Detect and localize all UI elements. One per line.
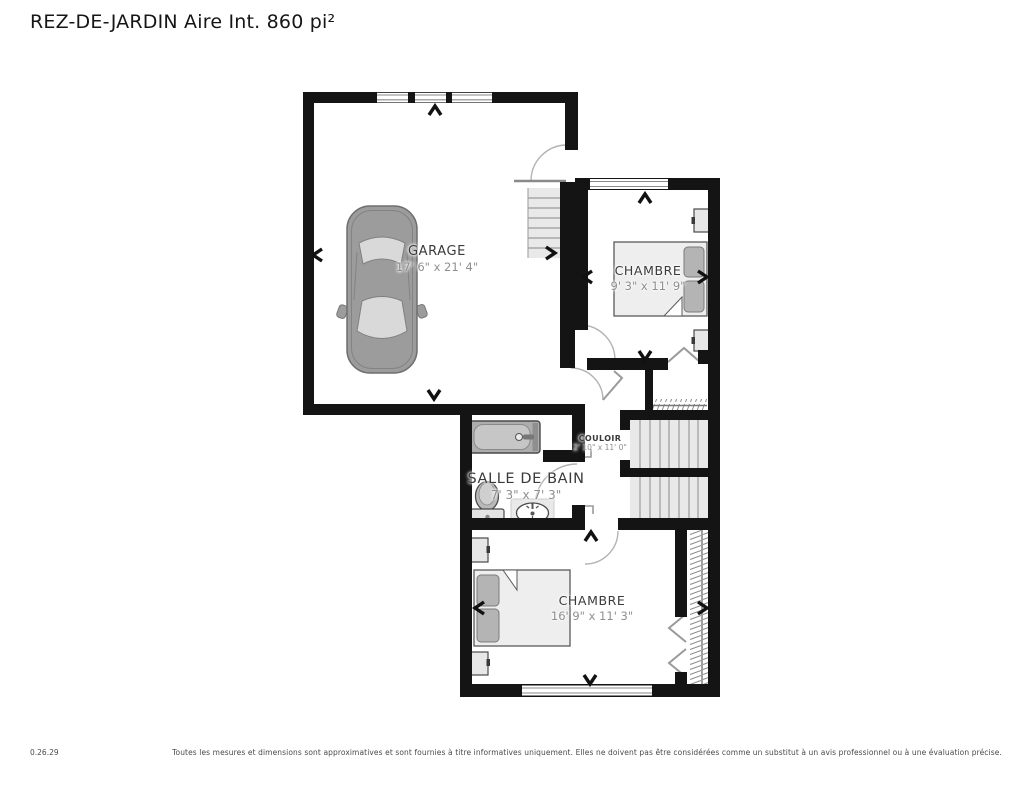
room-dimension-couloir: 2' 10" x 11' 0"	[573, 443, 627, 452]
arrow-down-icon	[584, 675, 596, 684]
arrow-up-icon	[639, 194, 651, 203]
room-name-couloir: COULOIR	[573, 434, 627, 443]
room-dimension-chambre1: 9' 3" x 11' 9"	[611, 279, 686, 293]
garage-couloir-door-arc	[571, 368, 603, 400]
arrow-left-icon	[313, 249, 322, 261]
room-name-garage: GARAGE	[396, 244, 478, 259]
garage-door-opening	[377, 93, 492, 103]
closet2-bifold-door-upper	[669, 614, 686, 642]
room-label-group-couloir: COULOIR 2' 10" x 11' 0"	[573, 434, 627, 452]
floorplan-drawing	[0, 0, 1024, 791]
staircase-garage-landing	[528, 188, 562, 258]
footer-disclaimer: Toutes les mesures et dimensions sont ap…	[170, 748, 1004, 757]
room-name-chambre1: CHAMBRE	[611, 263, 686, 278]
staircase-main-upper-flight	[630, 420, 708, 468]
pillow	[477, 609, 499, 642]
window-chambre2	[522, 686, 652, 696]
footer-version: 0.26.29	[30, 748, 59, 757]
chambre1-door-arc	[580, 325, 615, 360]
car	[336, 206, 428, 373]
tub-faucet	[516, 434, 523, 441]
staircase-main-lower-flight	[630, 477, 708, 518]
room-label-group-chambre2: CHAMBRE 16' 9" x 11' 3"	[551, 593, 633, 623]
pillow	[684, 281, 704, 312]
room-label-group-garage: GARAGE 17' 6" x 21' 4"	[396, 244, 478, 274]
garage-couloir-door-leaf	[603, 371, 622, 400]
room-name-chambre2: CHAMBRE	[551, 593, 633, 608]
room-label-group-salle-de-bain: SALLE DE BAIN 7' 3" x 7' 3"	[467, 471, 584, 502]
window-chambre1	[590, 179, 668, 189]
bathtub	[470, 421, 540, 453]
floorplan-page: REZ-DE-JARDIN Aire Int. 860 pi²	[0, 0, 1024, 791]
room-dimension-salle-de-bain: 7' 3" x 7' 3"	[467, 488, 584, 502]
room-label-group-chambre1: CHAMBRE 9' 3" x 11' 9"	[611, 263, 686, 293]
room-name-salle-de-bain: SALLE DE BAIN	[467, 471, 584, 487]
garage-entry-door-arc	[531, 145, 567, 181]
room-dimension-chambre2: 16' 9" x 11' 3"	[551, 609, 633, 623]
arrow-up-icon	[585, 532, 597, 541]
tub-spout	[523, 435, 534, 440]
arrow-up-icon	[429, 106, 441, 115]
pillow	[477, 575, 499, 606]
arrow-down-icon	[428, 390, 440, 399]
room-dimension-garage: 17' 6" x 21' 4"	[396, 260, 478, 274]
